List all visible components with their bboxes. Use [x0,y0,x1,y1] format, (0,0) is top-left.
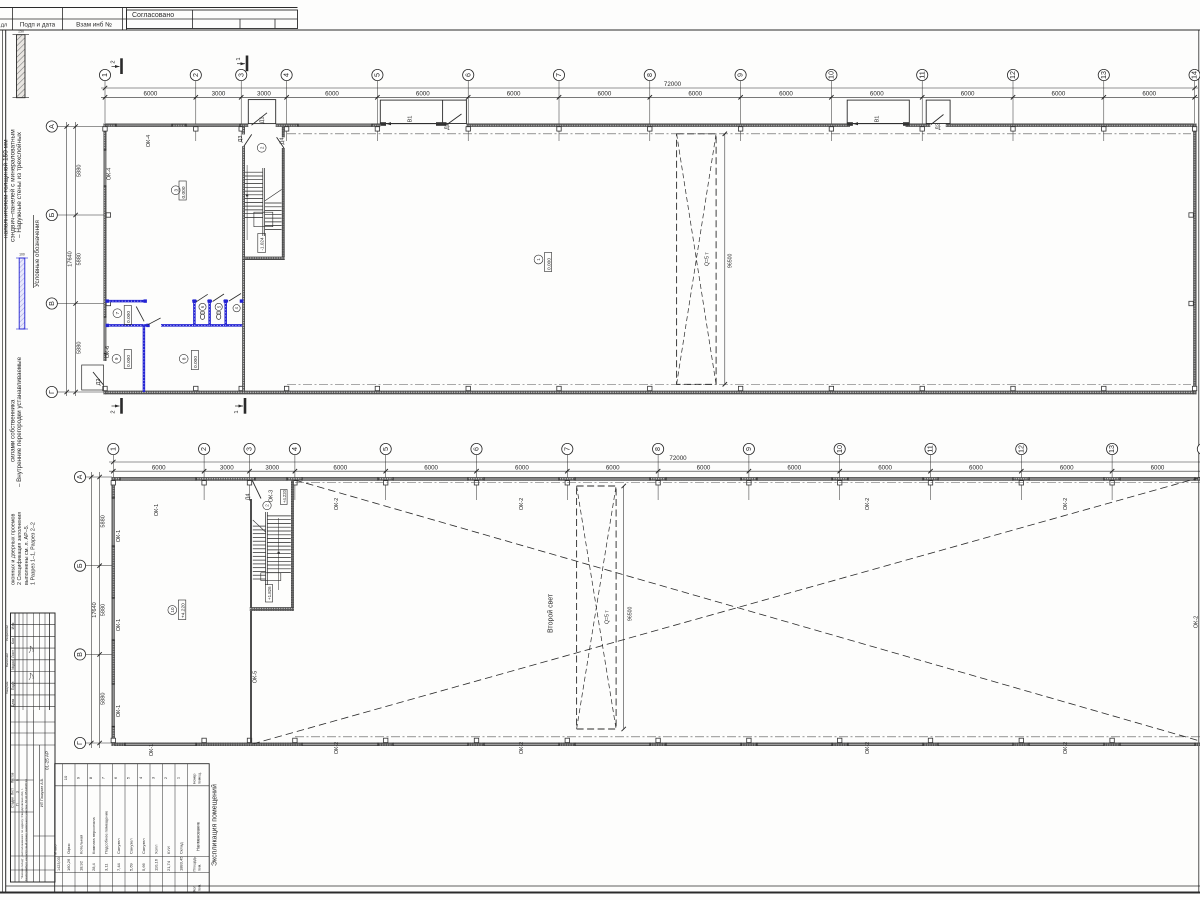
svg-text:ОК-2: ОК-2 [519,742,525,755]
svg-text:3,11: 3,11 [104,863,109,871]
svg-text:ОК-1: ОК-1 [149,744,155,757]
svg-text:6000: 6000 [416,91,430,98]
svg-text:Склад: Склад [179,842,184,854]
svg-text:№док: №док [11,660,15,670]
svg-text:Санузел: Санузел [129,838,134,854]
svg-text:В: В [47,301,56,306]
svg-text:– Внутренние перегородки устан: – Внутренние перегородки устанавливаемые [16,356,23,487]
svg-text:пом.: пом. [198,884,202,891]
svg-text:5880: 5880 [100,515,106,527]
svg-text:Г: Г [47,390,56,394]
svg-text:Q=5 т: Q=5 т [605,610,611,624]
svg-text:Д1: Д1 [260,117,266,124]
svg-text:01-25 АР: 01-25 АР [44,751,49,770]
svg-text:0.000: 0.000 [546,258,552,270]
svg-text:5: 5 [381,447,390,451]
svg-text:Б: Б [75,563,84,568]
svg-text:2: 2 [191,73,200,77]
svg-text:6000: 6000 [697,465,711,472]
svg-text:Лист: Лист [11,788,15,795]
svg-text:150: 150 [18,30,24,34]
svg-text:Изм: Изм [11,622,15,629]
svg-text:9: 9 [114,357,119,360]
svg-text:Подп: Подп [11,682,15,691]
svg-text:13: 13 [1099,71,1108,79]
svg-text:1: 1 [108,447,117,451]
svg-text:7,44: 7,44 [116,862,121,871]
svg-text:11: 11 [926,445,935,452]
svg-text:7: 7 [562,447,571,451]
svg-text:6000: 6000 [961,91,975,98]
svg-text:Д2: Д2 [936,123,942,130]
svg-text:1883,45: 1883,45 [179,856,184,871]
svg-text:ОК-4: ОК-4 [107,168,113,181]
svg-text:6000: 6000 [878,465,892,472]
svg-text:ОК-1: ОК-1 [154,504,160,517]
svg-text:А: А [47,124,56,129]
svg-text:оконных и дверных проемов: оконных и дверных проемов [10,513,16,585]
svg-text:6000: 6000 [969,465,983,472]
svg-text:Г: Г [75,741,84,745]
svg-text:Д2: Д2 [96,379,102,386]
svg-text:ОК-2: ОК-2 [1194,616,1200,629]
svg-text:10: 10 [835,445,844,453]
svg-text:1423,03: 1423,03 [57,857,61,871]
svg-text:9: 9 [736,73,745,77]
svg-text:6000: 6000 [1142,91,1156,98]
svg-text:6000: 6000 [870,91,884,98]
svg-text:0.000: 0.000 [126,311,132,323]
svg-text:11: 11 [917,71,926,78]
svg-text:Комната персонала: Комната персонала [91,817,96,854]
svg-text:6000: 6000 [779,91,793,98]
svg-text:Второй свет: Второй свет [547,593,555,633]
svg-text:ОК-2: ОК-2 [334,742,340,755]
svg-text:ОК-5: ОК-5 [253,671,259,684]
svg-text:ОК-3: ОК-3 [269,490,275,503]
svg-text:ОК-2: ОК-2 [519,498,525,511]
svg-text:Офис: Офис [66,843,71,854]
svg-text:Наименование: Наименование [196,821,201,851]
svg-text:13: 13 [1107,445,1116,453]
svg-text:Д4: Д4 [279,138,285,145]
svg-text:6000: 6000 [1060,465,1074,472]
svg-text:6000: 6000 [507,91,521,98]
svg-text:5,66: 5,66 [141,862,146,871]
svg-text:Q=5 т: Q=5 т [705,252,711,266]
svg-text:выполнены см. л. АР–5.: выполнены см. л. АР–5. [24,525,30,585]
svg-text:6000: 6000 [152,465,166,472]
svg-text:1 Разрез 1–1, Разрез 2–2: 1 Разрез 1–1, Разрез 2–2 [31,522,37,585]
svg-text:+4.220: +4.220 [180,603,186,618]
svg-text:0.000: 0.000 [193,356,199,368]
svg-text:8: 8 [181,357,186,360]
svg-text:Согласовано: Согласовано [132,12,174,19]
svg-text:6000: 6000 [606,465,620,472]
svg-text:силами собственника: силами собственника [9,399,16,462]
svg-text:3000: 3000 [212,91,226,98]
svg-text:Кол: Кол [11,638,15,644]
svg-text:6000: 6000 [1052,91,1066,98]
svg-text:3: 3 [245,447,254,451]
svg-text:2: 2 [199,447,208,451]
svg-text:Площадь: Площадь [193,857,197,872]
svg-text:2: 2 [265,504,270,507]
svg-text:18,92: 18,92 [79,860,84,871]
svg-text:ОК-4: ОК-4 [146,135,152,148]
svg-text:12: 12 [1008,71,1017,79]
svg-text:12: 12 [1016,445,1025,453]
svg-text:Разработал: Разработал [5,625,9,642]
svg-text:Экспликация помещений: Экспликация помещений [211,784,219,866]
svg-text:8: 8 [653,447,662,451]
svg-text:6000: 6000 [688,91,702,98]
svg-text:5880: 5880 [100,604,106,616]
svg-text:0.000: 0.000 [126,355,132,367]
svg-text:17640: 17640 [68,251,74,267]
svg-text:1: 1 [100,73,109,77]
svg-text:Пашухин: Пашухин [5,681,9,694]
svg-text:Котельная: Котельная [79,835,84,854]
svg-text:160,26: 160,26 [66,858,71,871]
svg-text:ОК-2: ОК-2 [334,498,340,511]
svg-text:14: 14 [1190,71,1199,79]
svg-text:ОК-1: ОК-1 [116,619,122,632]
svg-text:0.000: 0.000 [181,186,187,198]
svg-text:А: А [75,474,84,479]
svg-text:2: 2 [111,410,117,413]
svg-text:5880: 5880 [76,164,82,176]
svg-text:Листов: Листов [11,772,15,783]
svg-text:7: 7 [554,73,563,77]
svg-text:ОК-2: ОК-2 [1063,498,1069,511]
svg-text:6000: 6000 [598,91,612,98]
svg-text:2 Спецификация заполнения: 2 Спецификация заполнения [17,512,23,585]
svg-text:21,74: 21,74 [166,860,171,871]
svg-text:1: 1 [536,258,541,261]
svg-text:3000: 3000 [265,465,279,472]
svg-text:9: 9 [744,447,753,451]
svg-text:Выполнил: Выполнил [5,653,9,667]
svg-text:6000: 6000 [1151,465,1165,472]
svg-text:дл: дл [1,23,7,29]
svg-text:4: 4 [290,447,299,451]
svg-text:Подп и дата: Подп и дата [20,22,56,29]
svg-text:17640: 17640 [92,602,98,618]
svg-text:ОК-2: ОК-2 [1063,742,1069,755]
svg-text:6: 6 [472,447,481,451]
svg-text:10: 10 [170,607,175,613]
svg-text:В: В [75,652,84,657]
svg-text:Екатеринбург, кадастровый номе: Екатеринбург, кадастровый номер земельно… [24,779,28,881]
svg-text:ОК-1: ОК-1 [116,530,122,543]
svg-text:+4.220: +4.220 [282,489,287,503]
svg-text:3000: 3000 [220,465,234,472]
svg-text:72000: 72000 [664,81,682,88]
svg-text:Подсобное помещение: Подсобное помещение [104,810,109,854]
svg-text:КУИ: КУИ [166,846,171,854]
svg-text:6000: 6000 [144,91,158,98]
svg-text:пом.: пом. [198,864,202,871]
svg-text:6000: 6000 [515,465,529,472]
svg-text:Условные обозначения: Условные обозначения [34,220,41,287]
svg-text:ОК-6: ОК-6 [105,346,111,359]
svg-text:10: 10 [827,71,836,79]
svg-text:10: 10 [63,775,68,780]
svg-text:Кол: Кол [193,886,197,892]
svg-text:5880: 5880 [76,253,82,265]
svg-text:В1: В1 [408,116,414,123]
svg-text:наполнителем толщиной 150 мм: наполнителем толщиной 150 мм [2,139,10,238]
svg-text:5880: 5880 [76,341,82,353]
svg-text:Санузел: Санузел [141,838,146,854]
svg-text:1: 1 [234,410,240,413]
svg-text:1: 1 [236,57,242,60]
svg-text:3000: 3000 [257,91,271,98]
svg-text:ОК-2: ОК-2 [865,742,871,755]
svg-text:2: 2 [111,60,117,63]
svg-text:5880: 5880 [100,692,106,704]
svg-text:6000: 6000 [424,465,438,472]
svg-text:П: П [16,803,20,806]
svg-text:6000: 6000 [787,465,801,472]
svg-text:помещ.: помещ. [198,772,202,784]
svg-text:96500: 96500 [628,606,634,621]
svg-text:3: 3 [16,791,20,793]
svg-text:ИП Пашухин А.В.: ИП Пашухин А.В. [40,778,44,807]
svg-text:Д2: Д2 [445,123,451,130]
svg-text:6: 6 [463,73,472,77]
svg-text:Стадия: Стадия [11,797,15,808]
svg-text:Взам инб №: Взам инб № [76,21,112,29]
svg-text:2: 2 [259,146,264,149]
svg-text:Санузел: Санузел [116,838,121,854]
svg-text:Холл: Холл [154,844,159,854]
svg-text:7: 7 [115,311,120,314]
svg-text:100: 100 [19,253,25,257]
svg-text:96500: 96500 [728,253,734,268]
svg-text:5: 5 [373,73,382,77]
svg-text:28,4: 28,4 [91,862,96,871]
svg-text:+1.826: +1.826 [267,586,272,600]
svg-text:Лист: Лист [11,650,15,658]
svg-text:Номер: Номер [193,773,197,784]
svg-text:6: 6 [16,779,20,781]
svg-text:5,69: 5,69 [129,862,134,871]
svg-text:ОК-1: ОК-1 [116,705,122,718]
svg-text:6000: 6000 [333,465,347,472]
svg-text:3: 3 [236,73,245,77]
svg-text:Д4: Д4 [246,494,252,501]
svg-text:8: 8 [645,73,654,77]
svg-text:110,16: 110,16 [154,858,159,871]
svg-text:В1: В1 [875,116,881,123]
svg-text:Б: Б [47,212,56,217]
svg-text:ОК-2: ОК-2 [865,498,871,511]
svg-text:6000: 6000 [325,91,339,98]
svg-text:4: 4 [282,73,291,77]
svg-text:72000: 72000 [669,455,687,462]
svg-text:Д3: Д3 [238,136,244,143]
svg-text:Дата: Дата [11,699,15,707]
svg-text:3: 3 [173,188,178,191]
svg-text:-1.024: -1.024 [260,237,265,250]
